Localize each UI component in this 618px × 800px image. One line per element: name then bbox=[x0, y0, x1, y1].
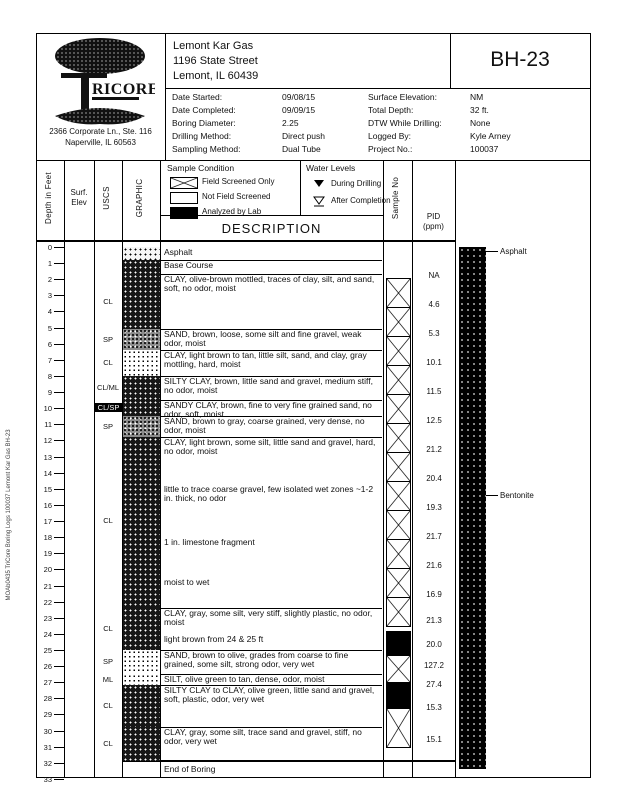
col-header-graphic: GRAPHIC bbox=[135, 163, 147, 233]
info-value-right: 100037 bbox=[470, 144, 498, 154]
info-label-right: Project No.: bbox=[368, 144, 412, 154]
depth-tick-label: 20 bbox=[37, 565, 52, 574]
graphic-block bbox=[123, 437, 160, 608]
depth-tick-mark bbox=[54, 263, 64, 264]
depth-tick-mark bbox=[54, 279, 64, 280]
legend-swatch-field-screened bbox=[170, 177, 198, 189]
pid-value: 12.5 bbox=[413, 416, 455, 425]
sample-box-field-screened bbox=[386, 394, 411, 424]
col-header-depth: Depth in Feet bbox=[44, 163, 56, 233]
logo-t-stem bbox=[81, 73, 89, 111]
header-vline-logo bbox=[165, 33, 166, 160]
sample-box-field-screened bbox=[386, 365, 411, 395]
layer-description: CLAY, light brown to tan, little silt, s… bbox=[164, 351, 378, 369]
pid-value: 20.4 bbox=[413, 474, 455, 483]
legend-water-item-label: During Drilling bbox=[331, 179, 381, 188]
depth-tick-label: 11 bbox=[37, 420, 52, 429]
pid-value: 21.6 bbox=[413, 561, 455, 570]
pid-value: 15.3 bbox=[413, 703, 455, 712]
depth-tick-label: 25 bbox=[37, 646, 52, 655]
depth-tick-label: 21 bbox=[37, 582, 52, 591]
info-label-left: Sampling Method: bbox=[172, 144, 241, 154]
uscs-label: CL bbox=[94, 701, 122, 710]
depth-tick-label: 3 bbox=[37, 291, 52, 300]
col-header-pid2: (ppm) bbox=[412, 222, 455, 231]
info-label-left: Date Started: bbox=[172, 92, 222, 102]
col-header-pid1: PID bbox=[412, 212, 455, 221]
depth-tick-label: 5 bbox=[37, 324, 52, 333]
pid-value: 127.2 bbox=[413, 661, 455, 670]
well-label-leader bbox=[486, 495, 498, 496]
info-value-right: None bbox=[470, 118, 490, 128]
depth-tick-mark bbox=[54, 408, 64, 409]
legend-water-item-label: After Completion bbox=[331, 196, 391, 205]
depth-tick-label: 28 bbox=[37, 694, 52, 703]
depth-tick-mark bbox=[54, 376, 64, 377]
legend-swatch-lab bbox=[170, 207, 198, 219]
depth-tick-mark bbox=[54, 473, 64, 474]
depth-tick-mark bbox=[54, 666, 64, 667]
water-level-after-icon bbox=[313, 196, 325, 207]
info-value-right: 32 ft. bbox=[470, 105, 489, 115]
depth-tick-label: 6 bbox=[37, 340, 52, 349]
depth-tick-mark bbox=[54, 763, 64, 764]
end-of-boring-label: End of Boring bbox=[164, 764, 216, 774]
layer-description: SAND, brown to olive, grades from coarse… bbox=[164, 651, 378, 669]
graphic-block bbox=[123, 685, 160, 727]
info-label-right: DTW While Drilling: bbox=[368, 118, 442, 128]
sample-box-field-screened bbox=[386, 278, 411, 308]
info-value-left: 2.25 bbox=[282, 118, 299, 128]
depth-tick-label: 31 bbox=[37, 743, 52, 752]
logo-address-line1: 2366 Corporate Ln., Ste. 116 bbox=[36, 127, 165, 136]
info-label-left: Date Completed: bbox=[172, 105, 236, 115]
pid-value: 21.3 bbox=[413, 616, 455, 625]
info-value-left: Dual Tube bbox=[282, 144, 321, 154]
depth-tick-label: 2 bbox=[37, 275, 52, 284]
margin-stamp-text: MOAb0435 TriCore Boring Logs 100037 Lemo… bbox=[6, 390, 16, 640]
graphic-block bbox=[123, 329, 160, 350]
depth-tick-mark bbox=[54, 682, 64, 683]
layer-description: SILT, olive green to tan, dense, odor, m… bbox=[164, 675, 378, 684]
legend-water-title: Water Levels bbox=[306, 163, 355, 173]
depth-tick-mark bbox=[54, 714, 64, 715]
layer-annotation: moist to wet bbox=[164, 578, 378, 587]
well-label: Bentonite bbox=[500, 491, 534, 500]
depth-tick-mark bbox=[54, 360, 64, 361]
sample-box-field-screened bbox=[386, 307, 411, 337]
uscs-label: CL bbox=[94, 739, 122, 748]
boring-bottom-heavy bbox=[122, 760, 455, 762]
client-address2: Lemont, IL 60439 bbox=[173, 70, 258, 82]
legend-sample-item-label: Analyzed by Lab bbox=[202, 207, 261, 216]
depth-tick-mark bbox=[54, 586, 64, 587]
uscs-label: CL/ML bbox=[94, 383, 122, 392]
depth-tick-label: 26 bbox=[37, 662, 52, 671]
depth-tick-label: 30 bbox=[37, 727, 52, 736]
info-value-right: NM bbox=[470, 92, 483, 102]
layer-description: Asphalt bbox=[164, 248, 378, 257]
graphic-block bbox=[123, 650, 160, 674]
graphic-block bbox=[123, 674, 160, 685]
info-value-left: 09/09/15 bbox=[282, 105, 315, 115]
pid-value: 21.7 bbox=[413, 532, 455, 541]
depth-tick-mark bbox=[54, 424, 64, 425]
depth-tick-mark bbox=[54, 650, 64, 651]
layer-description: SAND, brown, loose, some silt and fine g… bbox=[164, 330, 378, 348]
graphic-block bbox=[123, 260, 160, 275]
depth-tick-label: 8 bbox=[37, 372, 52, 381]
uscs-label: SP bbox=[94, 335, 122, 344]
graphic-block bbox=[123, 274, 160, 329]
uscs-label: CL bbox=[94, 624, 122, 633]
sample-box-field-screened bbox=[386, 452, 411, 482]
info-label-right: Surface Elevation: bbox=[368, 92, 437, 102]
sample-box-lab bbox=[386, 631, 411, 656]
uscs-label: SP bbox=[94, 657, 122, 666]
legend-sample-item-label: Field Screened Only bbox=[202, 177, 274, 186]
graphic-block bbox=[123, 608, 160, 650]
depth-tick-mark bbox=[54, 537, 64, 538]
legend-sample-item-label: Not Field Screened bbox=[202, 192, 270, 201]
uscs-label: SP bbox=[94, 422, 122, 431]
depth-tick-mark bbox=[54, 731, 64, 732]
sample-box-field-screened bbox=[386, 539, 411, 569]
depth-tick-label: 32 bbox=[37, 759, 52, 768]
depth-tick-label: 10 bbox=[37, 404, 52, 413]
depth-tick-label: 33 bbox=[37, 775, 52, 784]
pid-value: 19.3 bbox=[413, 503, 455, 512]
depth-tick-mark bbox=[54, 634, 64, 635]
pid-value: 27.4 bbox=[413, 680, 455, 689]
layer-description: SAND, brown to gray, coarse grained, ver… bbox=[164, 417, 378, 435]
well-label-leader bbox=[486, 251, 498, 252]
sample-box-field-screened bbox=[386, 597, 411, 627]
vline-graphic bbox=[160, 160, 161, 777]
depth-tick-mark bbox=[54, 505, 64, 506]
client-name: Lemont Kar Gas bbox=[173, 40, 253, 52]
logo-text: RICORE bbox=[92, 81, 155, 98]
depth-tick-mark bbox=[54, 328, 64, 329]
depth-tick-label: 7 bbox=[37, 356, 52, 365]
layer-annotation: 1 in. limestone fragment bbox=[164, 538, 378, 547]
info-value-left: Direct push bbox=[282, 131, 325, 141]
logo-tagline-bar bbox=[92, 97, 139, 100]
col-header-surf2: Elev bbox=[64, 198, 94, 207]
legend-sample-condition-title: Sample Condition bbox=[167, 163, 234, 173]
layer-description: Base Course bbox=[164, 261, 378, 270]
graphic-block bbox=[123, 400, 160, 416]
uscs-label: CL bbox=[94, 516, 122, 525]
depth-tick-mark bbox=[54, 779, 64, 780]
depth-tick-mark bbox=[54, 457, 64, 458]
col-header-description: DESCRIPTION bbox=[160, 221, 383, 236]
sample-box-field-screened bbox=[386, 568, 411, 598]
depth-tick-mark bbox=[54, 311, 64, 312]
depth-tick-label: 17 bbox=[37, 517, 52, 526]
uscs-label: ML bbox=[94, 675, 122, 684]
col-header-uscs: USCS bbox=[102, 163, 114, 233]
depth-tick-mark bbox=[54, 440, 64, 441]
tricore-logo: RICORE bbox=[45, 36, 155, 126]
depth-tick-label: 19 bbox=[37, 549, 52, 558]
depth-tick-mark bbox=[54, 569, 64, 570]
vline-depth bbox=[64, 160, 65, 777]
layer-annotation: little to trace coarse gravel, few isola… bbox=[164, 485, 378, 503]
depth-tick-label: 13 bbox=[37, 453, 52, 462]
well-label: Asphalt bbox=[500, 247, 527, 256]
logo-ground bbox=[55, 108, 145, 124]
depth-tick-label: 18 bbox=[37, 533, 52, 542]
graphic-block bbox=[123, 247, 160, 260]
uscs-label: CL/SP bbox=[95, 403, 122, 412]
info-label-left: Drilling Method: bbox=[172, 131, 231, 141]
graphic-block bbox=[123, 350, 160, 376]
pid-value: 5.3 bbox=[413, 329, 455, 338]
depth-tick-label: 29 bbox=[37, 710, 52, 719]
depth-tick-mark bbox=[54, 553, 64, 554]
pid-value: 15.1 bbox=[413, 735, 455, 744]
depth-tick-label: 4 bbox=[37, 307, 52, 316]
depth-tick-label: 14 bbox=[37, 469, 52, 478]
header-hline-client bbox=[165, 88, 590, 89]
pid-value: 21.2 bbox=[413, 445, 455, 454]
depth-tick-label: 22 bbox=[37, 598, 52, 607]
pid-value: 16.9 bbox=[413, 590, 455, 599]
depth-tick-label: 1 bbox=[37, 259, 52, 268]
pid-value: NA bbox=[413, 271, 455, 280]
layer-description: CLAY, olive-brown mottled, traces of cla… bbox=[164, 275, 378, 293]
logo-canopy bbox=[55, 38, 145, 74]
depth-tick-mark bbox=[54, 344, 64, 345]
vline-pid bbox=[455, 160, 456, 777]
depth-tick-label: 24 bbox=[37, 630, 52, 639]
depth-tick-mark bbox=[54, 521, 64, 522]
layer-description: SILTY CLAY to CLAY, olive green, little … bbox=[164, 686, 378, 704]
layer-description: SILTY CLAY, brown, little sand and grave… bbox=[164, 377, 378, 395]
graphic-block bbox=[123, 376, 160, 400]
depth-tick-mark bbox=[54, 489, 64, 490]
well-column bbox=[459, 247, 486, 769]
info-label-left: Boring Diameter: bbox=[172, 118, 236, 128]
legend-swatch-not-screened bbox=[170, 192, 198, 204]
depth-tick-label: 0 bbox=[37, 243, 52, 252]
depth-tick-mark bbox=[54, 392, 64, 393]
header-hline-bottom bbox=[36, 160, 590, 161]
depth-tick-label: 16 bbox=[37, 501, 52, 510]
depth-tick-label: 15 bbox=[37, 485, 52, 494]
layer-annotation: light brown from 24 & 25 ft bbox=[164, 635, 378, 644]
info-label-right: Total Depth: bbox=[368, 105, 413, 115]
info-label-right: Logged By: bbox=[368, 131, 411, 141]
sample-box-field-screened bbox=[386, 481, 411, 511]
graphic-block bbox=[123, 416, 160, 437]
uscs-label: CL bbox=[94, 358, 122, 367]
pid-value: 4.6 bbox=[413, 300, 455, 309]
client-address1: 1196 State Street bbox=[173, 55, 258, 67]
pid-value: 10.1 bbox=[413, 358, 455, 367]
uscs-label: CL bbox=[94, 297, 122, 306]
depth-tick-mark bbox=[54, 618, 64, 619]
boring-id: BH-23 bbox=[450, 48, 590, 72]
depth-tick-mark bbox=[54, 747, 64, 748]
pid-value: 20.0 bbox=[413, 640, 455, 649]
depth-tick-label: 27 bbox=[37, 678, 52, 687]
depth-tick-mark bbox=[54, 295, 64, 296]
info-value-left: 09/08/15 bbox=[282, 92, 315, 102]
layer-description: CLAY, light brown, some silt, little san… bbox=[164, 438, 378, 456]
sample-box-field-screened bbox=[386, 655, 411, 683]
vline-surf bbox=[94, 160, 95, 777]
pid-value: 11.5 bbox=[413, 387, 455, 396]
vline-desc bbox=[383, 160, 384, 777]
depth-tick-label: 23 bbox=[37, 614, 52, 623]
logo-address-line2: Naperville, IL 60563 bbox=[36, 138, 165, 147]
depth-tick-mark bbox=[54, 602, 64, 603]
depth-tick-label: 9 bbox=[37, 388, 52, 397]
layer-description: CLAY, gray, some silt, very stiff, sligh… bbox=[164, 609, 378, 627]
info-value-right: Kyle Arney bbox=[470, 131, 511, 141]
legend-divider bbox=[300, 160, 301, 215]
water-level-during-icon bbox=[313, 179, 325, 190]
sample-box-field-screened bbox=[386, 708, 411, 748]
sample-box-field-screened bbox=[386, 336, 411, 366]
sample-box-lab bbox=[386, 682, 411, 709]
colband-heavy bbox=[36, 240, 455, 242]
sample-box-field-screened bbox=[386, 510, 411, 540]
graphic-block bbox=[123, 727, 160, 761]
sample-box-field-screened bbox=[386, 423, 411, 453]
boring-log-page: RICORE 2366 Corporate Ln., Ste. 116 Nape… bbox=[0, 0, 618, 800]
depth-tick-mark bbox=[54, 698, 64, 699]
col-header-surf1: Surf. bbox=[64, 188, 94, 197]
depth-tick-mark bbox=[54, 247, 64, 248]
depth-tick-label: 12 bbox=[37, 436, 52, 445]
col-header-sample: Sample No bbox=[391, 163, 403, 233]
layer-description: CLAY, gray, some silt, trace sand and gr… bbox=[164, 728, 378, 746]
